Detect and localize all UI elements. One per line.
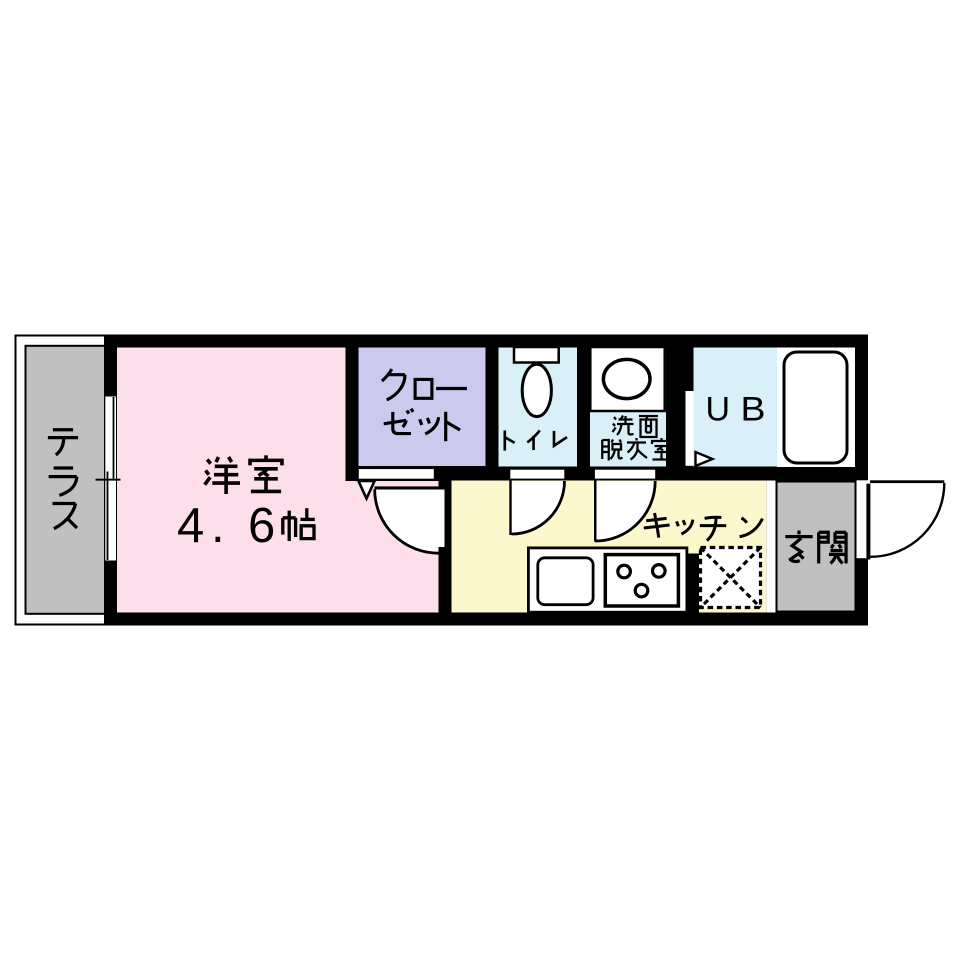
svg-text:6: 6 (248, 499, 275, 553)
svg-text:4: 4 (177, 499, 204, 553)
svg-text:U: U (706, 391, 731, 429)
svg-text:B: B (741, 391, 766, 429)
svg-text:.: . (211, 499, 225, 553)
